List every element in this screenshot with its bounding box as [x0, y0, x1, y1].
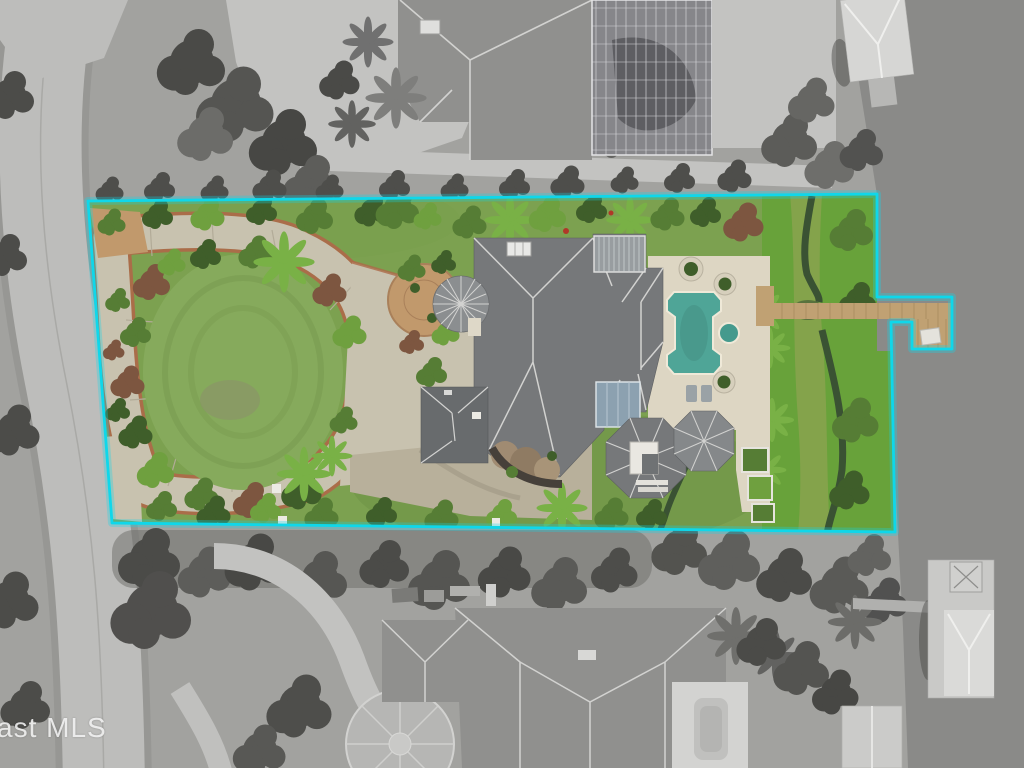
- bottom-boathouse-roof: [944, 610, 994, 696]
- dock-boat-lift: [920, 328, 941, 345]
- entry-walk: [468, 318, 481, 336]
- bottom-boat-lift: [950, 562, 982, 592]
- aerial-scene: [0, 0, 1024, 768]
- top-neighbor-pool-enclosure: [592, 0, 712, 155]
- bottom-right-shed: [842, 706, 902, 768]
- aerial-photo: ast MLS: [0, 0, 1024, 768]
- bottom-neighbor-pool: [672, 682, 748, 768]
- gazebo-roof-small: [674, 411, 734, 471]
- property-lot: [80, 180, 954, 550]
- skylight: [507, 242, 531, 256]
- watermark-text: ast MLS: [0, 712, 107, 744]
- top-neighbor-deck: [712, 0, 836, 148]
- screened-lanai-roof: [594, 236, 645, 272]
- garage-roof: [421, 387, 488, 463]
